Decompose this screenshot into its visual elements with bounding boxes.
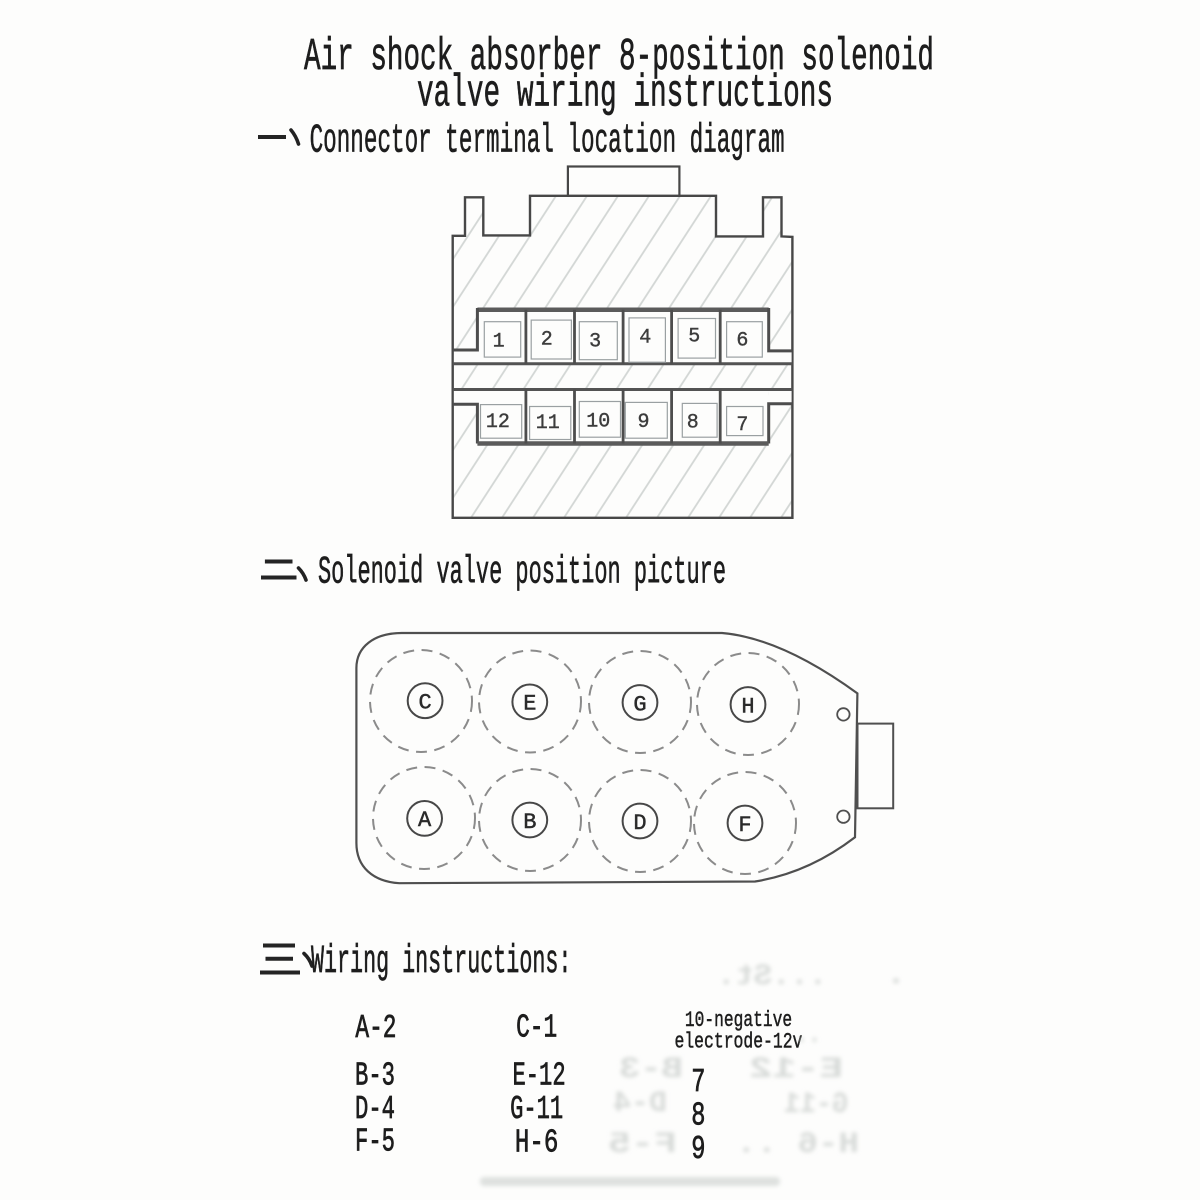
svg-text:...St.: ...St.	[717, 960, 827, 994]
svg-text:B-3: B-3	[355, 1057, 395, 1095]
svg-text:F-5: F-5	[355, 1124, 395, 1162]
svg-text:Connector terminal location di: Connector terminal location diagram	[310, 119, 785, 165]
svg-text:..: ..	[795, 1018, 821, 1052]
svg-text:H-6 ..: H-6 ..	[736, 1128, 859, 1162]
svg-text:7: 7	[691, 1064, 705, 1102]
svg-text:E: E	[523, 692, 536, 717]
svg-text:9: 9	[637, 411, 649, 434]
svg-text:H: H	[741, 694, 754, 719]
svg-text:.: .	[885, 959, 907, 993]
svg-text:11: 11	[536, 412, 560, 435]
svg-text:2: 2	[541, 329, 553, 352]
svg-text:4: 4	[639, 327, 651, 350]
svg-text:F: F	[738, 813, 751, 838]
svg-text:H-6: H-6	[515, 1124, 559, 1162]
svg-text:valve wiring instructions: valve wiring instructions	[417, 69, 833, 120]
svg-text:G-11: G-11	[510, 1091, 563, 1129]
svg-text:electrode-12v: electrode-12v	[675, 1028, 803, 1054]
svg-text:7: 7	[736, 414, 748, 437]
svg-text:B: B	[523, 810, 536, 835]
svg-text:D-4: D-4	[613, 1087, 667, 1121]
svg-text:C: C	[418, 691, 431, 716]
svg-text:E-12: E-12	[749, 1053, 843, 1087]
svg-text:C-1: C-1	[516, 1010, 557, 1048]
svg-text:G: G	[633, 692, 646, 717]
svg-text:D: D	[633, 811, 646, 836]
svg-text:Solenoid valve position pictur: Solenoid valve position picture	[318, 550, 726, 594]
svg-text:12: 12	[486, 411, 510, 434]
svg-text:B-3: B-3	[619, 1053, 683, 1087]
svg-text:A: A	[418, 808, 432, 833]
svg-text:6: 6	[736, 329, 748, 352]
svg-text:1: 1	[493, 330, 505, 353]
svg-text:G-11: G-11	[784, 1088, 848, 1122]
svg-text:3: 3	[589, 330, 601, 353]
svg-text:E-12: E-12	[513, 1057, 566, 1095]
svg-text:10: 10	[586, 410, 610, 433]
svg-text:8: 8	[691, 1097, 705, 1135]
svg-text:5: 5	[688, 326, 700, 349]
svg-text:F-5: F-5	[608, 1128, 677, 1162]
svg-text:8: 8	[687, 412, 699, 435]
svg-text:9: 9	[691, 1131, 705, 1169]
svg-text:A-2: A-2	[355, 1010, 396, 1048]
svg-text:Wiring instructions:: Wiring instructions:	[311, 939, 571, 984]
